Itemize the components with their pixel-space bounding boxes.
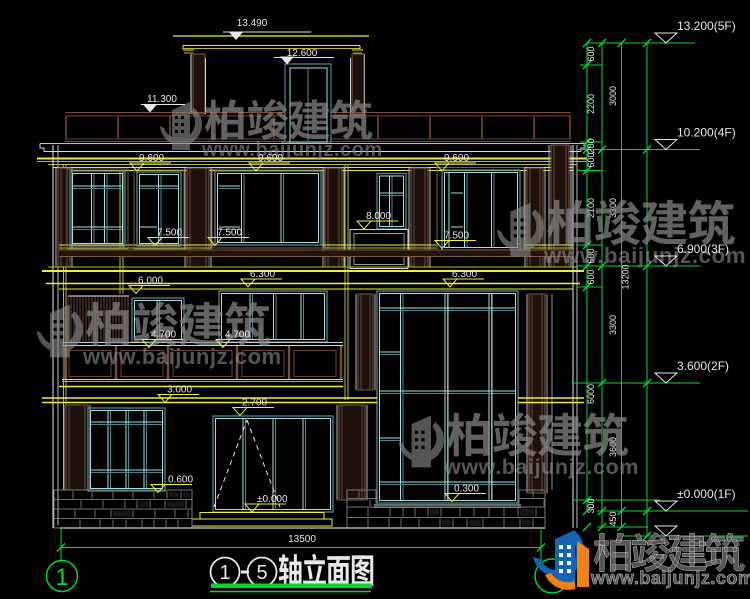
svg-text:3.600(2F): 3.600(2F): [677, 359, 729, 373]
svg-text:10.200(4F): 10.200(4F): [677, 126, 736, 140]
svg-text:0.600: 0.600: [168, 475, 193, 486]
svg-text:±0.000(1F): ±0.000(1F): [677, 487, 736, 501]
svg-text:3.000: 3.000: [167, 385, 192, 396]
svg-text:11.300: 11.300: [147, 94, 177, 105]
svg-text:450: 450: [608, 511, 618, 526]
svg-text:7.500: 7.500: [217, 228, 242, 239]
svg-text:±0.000: ±0.000: [257, 494, 288, 505]
svg-text:3000: 3000: [608, 86, 618, 106]
svg-text:13200: 13200: [621, 264, 631, 289]
svg-text:8.000: 8.000: [366, 211, 391, 222]
svg-text:13.490: 13.490: [237, 18, 268, 29]
svg-text:13500: 13500: [288, 534, 316, 545]
svg-text:0.300: 0.300: [454, 484, 479, 495]
svg-text:600: 600: [586, 152, 596, 167]
svg-text:7.500: 7.500: [157, 228, 182, 239]
svg-text:600: 600: [586, 46, 596, 61]
svg-text:1: 1: [55, 564, 68, 591]
svg-text:6.000: 6.000: [138, 276, 163, 287]
svg-text:7.500: 7.500: [444, 231, 469, 242]
svg-text:300: 300: [586, 498, 596, 513]
svg-text:www.baijunjz.com: www.baijunjz.com: [443, 454, 639, 479]
svg-text:1: 1: [219, 562, 230, 584]
svg-text:6000: 6000: [586, 384, 596, 404]
svg-text:4.700: 4.700: [225, 330, 250, 341]
svg-text:200: 200: [586, 138, 596, 153]
svg-text:9.600: 9.600: [139, 153, 164, 164]
svg-text:9.600: 9.600: [444, 153, 469, 164]
svg-text:3300: 3300: [608, 315, 618, 335]
svg-text:13.200(5F): 13.200(5F): [677, 19, 736, 33]
svg-text:6.300: 6.300: [452, 269, 477, 280]
svg-text:www.baijunjz.com: www.baijunjz.com: [82, 344, 282, 369]
svg-text:www.baijunjz.com: www.baijunjz.com: [201, 139, 383, 161]
svg-text:6.900(3F): 6.900(3F): [677, 242, 729, 256]
svg-text:5: 5: [256, 562, 267, 584]
svg-text:600: 600: [586, 269, 596, 284]
svg-text:6.300: 6.300: [250, 269, 275, 280]
svg-text:4.700: 4.700: [151, 330, 176, 341]
svg-text:2200: 2200: [586, 94, 596, 114]
svg-text:2.700: 2.700: [242, 398, 267, 409]
svg-text:www.baijunjz.com: www.baijunjz.com: [590, 568, 750, 588]
svg-text:9.600: 9.600: [258, 153, 283, 164]
